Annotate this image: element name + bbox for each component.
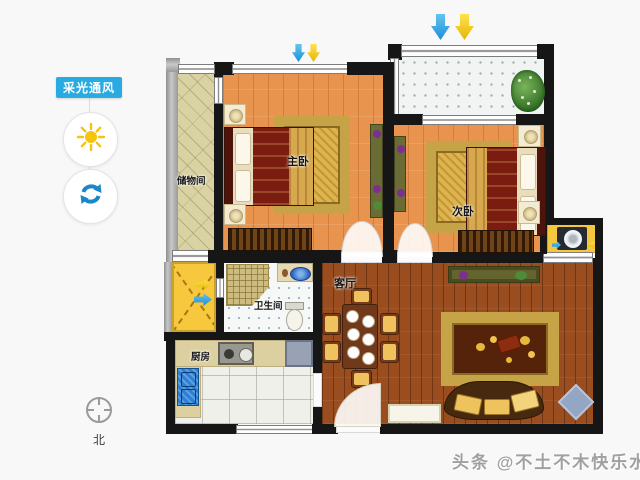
dining-chair xyxy=(380,313,399,335)
balcony-window xyxy=(401,45,538,57)
toggle-label: 采光通风 xyxy=(63,79,115,96)
bed-headboard xyxy=(225,128,233,205)
light-arrow-yellow-small xyxy=(307,44,320,62)
dining-chair xyxy=(322,313,341,335)
nightstand xyxy=(224,204,246,225)
daylight-ventilation-toggle[interactable]: 采光通风 xyxy=(56,77,122,98)
toilet xyxy=(286,309,303,331)
soap-decor xyxy=(282,269,288,277)
compass-north-label: 北 xyxy=(83,431,115,448)
light-arrow-blue-small xyxy=(292,44,305,62)
balcony-plant xyxy=(511,70,545,112)
bed-foot xyxy=(467,148,487,235)
burner xyxy=(239,348,253,362)
wall-segment xyxy=(313,262,322,434)
sun-icon xyxy=(76,122,106,157)
bed-blanket xyxy=(487,148,517,235)
floorplan-app: 采光通风 xyxy=(0,0,640,480)
coffee-table-item xyxy=(528,351,535,358)
kitchen-door-opening xyxy=(313,373,322,407)
wall-segment xyxy=(166,424,238,434)
refrigerator xyxy=(285,340,313,367)
plant-decor xyxy=(515,271,527,280)
plant-decor xyxy=(373,201,382,210)
kitchen-label: 厨房 xyxy=(191,353,210,363)
watermark: 头条 @不土不木快乐水 xyxy=(452,448,640,473)
utility-washer-nook xyxy=(547,224,596,253)
storage-room-label: 储物间 xyxy=(177,177,206,187)
second-bedroom-label: 次卧 xyxy=(452,207,474,218)
ventilation-button[interactable] xyxy=(63,169,118,224)
flower-decor xyxy=(373,185,381,193)
wall-shelf xyxy=(370,124,383,218)
coffee-table-item xyxy=(476,343,485,351)
burner xyxy=(224,349,234,359)
wall-shelf xyxy=(394,136,406,212)
doormat xyxy=(388,404,441,423)
light-arrow-yellow-large xyxy=(455,14,474,40)
refresh-icon xyxy=(77,180,105,213)
washing-machine xyxy=(557,227,587,250)
storage-top-window xyxy=(178,64,215,74)
stove xyxy=(218,342,254,365)
kitchen-sink xyxy=(177,368,199,406)
living-room-rug xyxy=(441,312,559,386)
nightstand xyxy=(518,125,541,147)
master-bedroom-window xyxy=(232,64,349,74)
bathroom-label: 卫生间 xyxy=(254,302,283,312)
kitchen-window xyxy=(236,425,314,434)
dining-table xyxy=(342,304,378,369)
serving-tray xyxy=(496,334,521,354)
wall-segment xyxy=(380,424,603,434)
tv-console xyxy=(448,266,540,283)
storage-room-floor xyxy=(177,66,214,250)
flower-decor xyxy=(397,189,405,197)
wall-segment xyxy=(166,332,175,430)
sofa xyxy=(444,381,544,420)
nightstand xyxy=(224,104,246,125)
bathroom-sink-counter xyxy=(277,263,313,282)
dining-chair xyxy=(322,341,341,363)
wall-segment xyxy=(432,252,544,263)
bed-blanket xyxy=(253,128,289,205)
coffee-table-item xyxy=(520,336,530,345)
wall-segment xyxy=(391,114,423,125)
living-room-label: 客厅 xyxy=(334,279,356,290)
wall-segment xyxy=(382,250,398,263)
wardrobe-dresser xyxy=(458,230,534,253)
bed-pillows xyxy=(233,128,253,205)
dining-chair xyxy=(351,288,372,305)
nightstand xyxy=(518,201,540,224)
daylight-button[interactable] xyxy=(63,112,118,167)
coffee-table-item xyxy=(506,357,512,363)
bathroom-sink xyxy=(290,267,311,281)
flower-decor xyxy=(397,145,405,153)
storage-door xyxy=(214,77,223,104)
compass: 北 xyxy=(83,394,115,440)
master-bedroom-label: 主卧 xyxy=(287,157,309,168)
bathroom-shaft-window xyxy=(216,278,224,298)
flower-decor xyxy=(373,130,381,138)
compass-icon xyxy=(83,413,115,430)
living-room-window-right xyxy=(543,252,593,263)
wall-segment xyxy=(595,218,603,263)
balcony-door-window xyxy=(422,115,517,125)
light-arrow-blue-large xyxy=(431,14,450,40)
flower-decor xyxy=(459,271,468,280)
storage-outer-wall xyxy=(166,58,178,262)
dining-chair xyxy=(380,341,399,363)
wall-segment xyxy=(593,258,603,434)
wall-segment xyxy=(540,218,603,225)
shaft-outer-wall xyxy=(164,262,172,332)
bedroom-divider-wall xyxy=(383,62,394,258)
wall-segment xyxy=(516,114,545,125)
wardrobe-dresser xyxy=(228,228,312,251)
